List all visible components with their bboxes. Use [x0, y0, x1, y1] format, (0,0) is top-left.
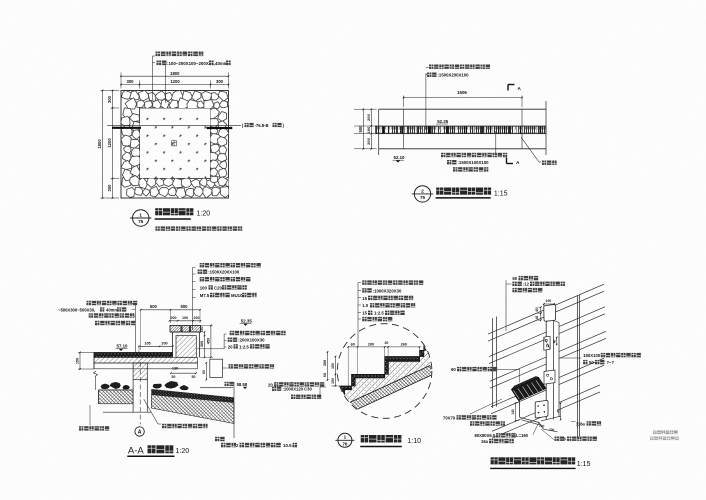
svg-text:20: 20 [384, 341, 388, 345]
svg-text:50: 50 [172, 375, 176, 379]
svg-text:200: 200 [161, 342, 167, 346]
svg-text:500: 500 [150, 304, 158, 309]
svg-text:1:2.5: 1:2.5 [239, 344, 249, 349]
svg-text:1200: 1200 [107, 138, 112, 148]
svg-text:150: 150 [331, 363, 335, 369]
svg-text:1:15: 1:15 [577, 461, 591, 468]
svg-text:60: 60 [323, 373, 327, 377]
svg-text:1:20: 1:20 [197, 211, 211, 218]
svg-text:20: 20 [228, 344, 233, 349]
svg-text:200: 200 [194, 316, 200, 320]
svg-text:300: 300 [107, 95, 112, 103]
svg-text:?~?: ?~? [607, 360, 615, 365]
svg-text::100~200X100~200X30,: :100~200X100~200X30, [167, 61, 215, 66]
svg-text:[16a: [16a [577, 421, 586, 426]
svg-text:1: 1 [344, 435, 347, 440]
svg-text::1000X320X30: :1000X320X30 [373, 288, 402, 293]
svg-text:70X70: 70X70 [443, 415, 456, 420]
svg-text:500: 500 [181, 304, 189, 309]
svg-text:1.0: 1.0 [362, 303, 369, 308]
svg-text:200: 200 [368, 342, 374, 346]
svg-text:A-A: A-A [128, 446, 144, 457]
svg-text:100: 100 [546, 299, 552, 303]
svg-text:200: 200 [171, 316, 177, 320]
svg-text:1800: 1800 [170, 71, 180, 76]
svg-text:1200: 1200 [170, 79, 180, 84]
svg-text:A: A [138, 430, 142, 436]
svg-text:10.5: 10.5 [283, 443, 292, 448]
svg-text:50: 50 [589, 360, 594, 365]
svg-text:M7.5: M7.5 [200, 293, 210, 298]
svg-text:105: 105 [144, 342, 150, 346]
svg-text:100: 100 [182, 316, 188, 320]
svg-text:L=160: L=160 [516, 433, 529, 438]
svg-text:C20: C20 [214, 285, 222, 290]
svg-text:200: 200 [366, 137, 371, 144]
svg-text::1500X200X100: :1500X200X100 [208, 270, 240, 275]
svg-text:300: 300 [107, 184, 112, 192]
svg-text:150: 150 [331, 378, 335, 384]
svg-text:1:2.5: 1:2.5 [374, 311, 384, 316]
svg-text:52.35: 52.35 [241, 318, 253, 323]
svg-text:-76.8-B: -76.8-B [255, 123, 269, 128]
svg-text:60: 60 [512, 276, 517, 281]
svg-text::1500X200X100: :1500X200X100 [438, 73, 470, 78]
svg-text::1500X100X100: :1500X100X100 [458, 160, 490, 165]
svg-text:130: 130 [172, 366, 178, 370]
svg-text:200: 200 [366, 113, 371, 120]
svg-text::1000X120 C30: :1000X120 C30 [283, 387, 313, 392]
svg-text:75: 75 [420, 195, 426, 200]
svg-text:60: 60 [202, 370, 206, 374]
svg-text:300: 300 [216, 79, 224, 84]
svg-text:1800: 1800 [97, 139, 102, 149]
svg-text:15: 15 [362, 311, 367, 316]
svg-text:52.10: 52.10 [394, 155, 406, 160]
svg-text:150: 150 [200, 327, 204, 333]
svg-text:40mm: 40mm [215, 61, 228, 66]
svg-text:15: 15 [362, 296, 367, 301]
svg-text:500: 500 [358, 125, 363, 133]
svg-text:150X100: 150X100 [583, 353, 601, 358]
svg-text:300: 300 [200, 341, 204, 347]
svg-text:1:20: 1:20 [176, 448, 190, 455]
svg-text:100: 100 [366, 126, 371, 133]
svg-text:76: 76 [342, 442, 348, 447]
svg-text:60: 60 [451, 367, 456, 372]
svg-text:1:10: 1:10 [407, 438, 421, 445]
svg-text:260: 260 [401, 342, 407, 346]
svg-text:75: 75 [138, 219, 144, 224]
svg-text:140: 140 [511, 409, 515, 415]
svg-text:45: 45 [535, 308, 539, 312]
svg-text:1506: 1506 [457, 90, 467, 95]
svg-text:100: 100 [200, 285, 208, 290]
svg-text:~500X300~500X30,: ~500X300~500X30, [58, 308, 95, 313]
svg-text:50: 50 [192, 375, 196, 379]
svg-text:40: 40 [552, 340, 556, 344]
svg-text:MU10: MU10 [231, 293, 243, 298]
svg-text:57.10: 57.10 [117, 344, 129, 349]
svg-text:40mm: 40mm [106, 308, 118, 313]
svg-text:52.35: 52.35 [437, 119, 449, 124]
svg-text:1:15: 1:15 [494, 190, 508, 197]
svg-text:450: 450 [207, 338, 211, 344]
svg-text:16a: 16a [481, 439, 489, 444]
svg-text::200X100X30: :200X100X30 [238, 338, 265, 343]
svg-text:300: 300 [127, 79, 135, 84]
svg-text:45: 45 [556, 409, 560, 413]
svg-text:300: 300 [323, 360, 327, 366]
svg-text:1: 1 [139, 212, 142, 217]
svg-text::12: :12 [523, 282, 530, 287]
svg-text:58.58: 58.58 [237, 382, 248, 387]
svg-text:45: 45 [535, 316, 539, 320]
svg-text:80X80X6.5: 80X80X6.5 [475, 433, 496, 438]
svg-text:150: 150 [76, 358, 80, 364]
svg-text:60: 60 [351, 342, 355, 346]
svg-text:2: 2 [421, 188, 424, 193]
